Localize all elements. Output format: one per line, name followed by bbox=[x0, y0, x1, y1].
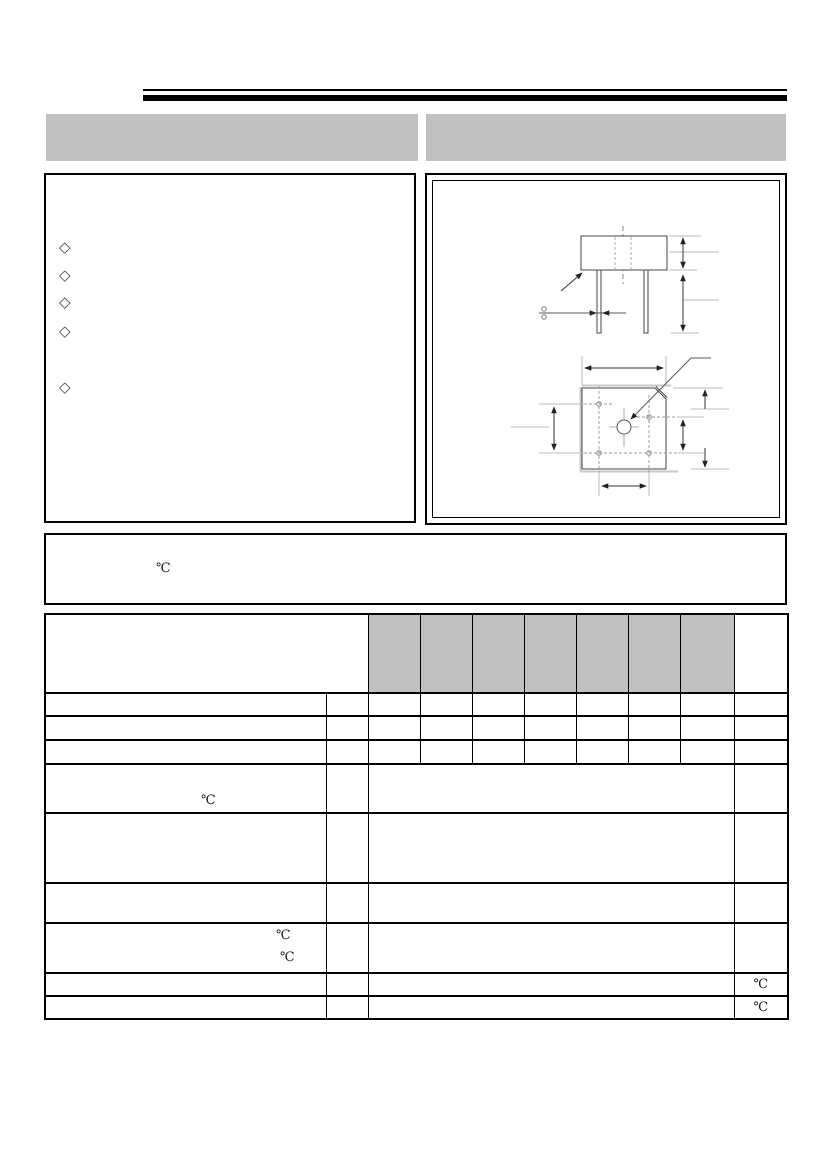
table-cell bbox=[326, 923, 368, 973]
table-header-type-cell bbox=[472, 614, 524, 693]
table-cell bbox=[45, 740, 326, 764]
table-header-type-cell bbox=[420, 614, 472, 693]
table-cell bbox=[628, 716, 680, 740]
table-cell bbox=[524, 740, 576, 764]
table-row: ℃ bbox=[45, 764, 788, 813]
table-cell bbox=[326, 996, 368, 1019]
table-cell bbox=[524, 693, 576, 716]
title-bar-right bbox=[426, 114, 786, 161]
table-cell bbox=[734, 716, 788, 740]
table-cell bbox=[326, 764, 368, 813]
feature-bullet-diamond: ◇ bbox=[59, 324, 71, 339]
feature-bullet-diamond: ◇ bbox=[59, 295, 71, 310]
table-header-parameter-cell bbox=[45, 614, 368, 693]
table-cell bbox=[368, 883, 734, 923]
table-cell bbox=[368, 996, 734, 1019]
table-cell bbox=[734, 813, 788, 883]
table-cell bbox=[734, 693, 788, 716]
table-cell bbox=[368, 923, 734, 973]
table-cell bbox=[734, 923, 788, 973]
table-row bbox=[45, 813, 788, 883]
table-cell bbox=[45, 813, 326, 883]
top-view bbox=[511, 356, 729, 496]
table-row bbox=[45, 740, 788, 764]
table-cell bbox=[45, 996, 326, 1019]
table-cell bbox=[368, 693, 420, 716]
note-panel: ℃ bbox=[44, 533, 787, 605]
table-cell bbox=[576, 693, 628, 716]
temp-value: ℃ bbox=[201, 794, 216, 807]
table-header-unit-cell bbox=[734, 614, 788, 693]
table-cell bbox=[326, 693, 368, 716]
package-dimension-drawing bbox=[433, 181, 777, 515]
table-cell bbox=[368, 716, 420, 740]
table-cell: ℃ bbox=[45, 764, 326, 813]
table-cell bbox=[368, 740, 420, 764]
table-cell bbox=[45, 693, 326, 716]
table-cell bbox=[472, 716, 524, 740]
table-cell bbox=[472, 740, 524, 764]
header-rule-thin bbox=[143, 89, 787, 91]
table-cell bbox=[680, 740, 734, 764]
table-cell bbox=[326, 973, 368, 996]
table-cell bbox=[524, 716, 576, 740]
table-row: ℃ ℃ bbox=[45, 923, 788, 973]
table-header-type-cell bbox=[628, 614, 680, 693]
outline-drawing-frame bbox=[432, 180, 780, 518]
table-header-type-cell bbox=[368, 614, 420, 693]
title-bar-left bbox=[46, 114, 418, 161]
table-cell bbox=[734, 883, 788, 923]
table-cell bbox=[326, 740, 368, 764]
table-cell bbox=[45, 716, 326, 740]
side-view bbox=[539, 226, 719, 333]
table-row bbox=[45, 883, 788, 923]
features-panel: ◇ ◇ ◇ ◇ ◇ bbox=[44, 173, 416, 523]
table-cell bbox=[368, 973, 734, 996]
feature-bullet-diamond: ◇ bbox=[59, 268, 71, 283]
temp-value: ℃ bbox=[280, 951, 295, 964]
feature-bullet-diamond: ◇ bbox=[59, 240, 71, 255]
table-row bbox=[45, 693, 788, 716]
table-cell bbox=[420, 716, 472, 740]
table-cell bbox=[326, 716, 368, 740]
table-row: ℃ bbox=[45, 996, 788, 1019]
table-cell bbox=[734, 740, 788, 764]
table-header-row bbox=[45, 614, 788, 693]
table-header-type-cell bbox=[576, 614, 628, 693]
table-cell: ℃ ℃ bbox=[45, 923, 326, 973]
table-cell bbox=[576, 716, 628, 740]
feature-bullet-diamond: ◇ bbox=[59, 380, 71, 395]
table-cell bbox=[734, 764, 788, 813]
temperature-note: ℃ bbox=[156, 562, 171, 575]
table-cell bbox=[368, 813, 734, 883]
table-row bbox=[45, 716, 788, 740]
table-header-type-cell bbox=[524, 614, 576, 693]
unit-cell: ℃ bbox=[734, 973, 788, 996]
table-cell bbox=[45, 883, 326, 923]
table-cell bbox=[628, 740, 680, 764]
table-cell bbox=[326, 813, 368, 883]
table-cell bbox=[628, 693, 680, 716]
table-cell bbox=[420, 693, 472, 716]
table-cell bbox=[368, 764, 734, 813]
table-cell bbox=[472, 693, 524, 716]
table-cell bbox=[680, 693, 734, 716]
table-cell bbox=[576, 740, 628, 764]
table-cell bbox=[420, 740, 472, 764]
table-row: ℃ bbox=[45, 973, 788, 996]
table-header-type-cell bbox=[680, 614, 734, 693]
temp-value: ℃ bbox=[276, 929, 291, 942]
datasheet-page: ◇ ◇ ◇ ◇ ◇ bbox=[0, 0, 826, 1169]
outline-drawing-panel bbox=[425, 173, 787, 525]
table-cell bbox=[326, 883, 368, 923]
table-cell bbox=[45, 973, 326, 996]
ratings-table: ℃ ℃ ℃ bbox=[44, 613, 789, 1020]
unit-cell: ℃ bbox=[734, 996, 788, 1019]
header-rule-thick bbox=[143, 95, 787, 101]
table-cell bbox=[680, 716, 734, 740]
